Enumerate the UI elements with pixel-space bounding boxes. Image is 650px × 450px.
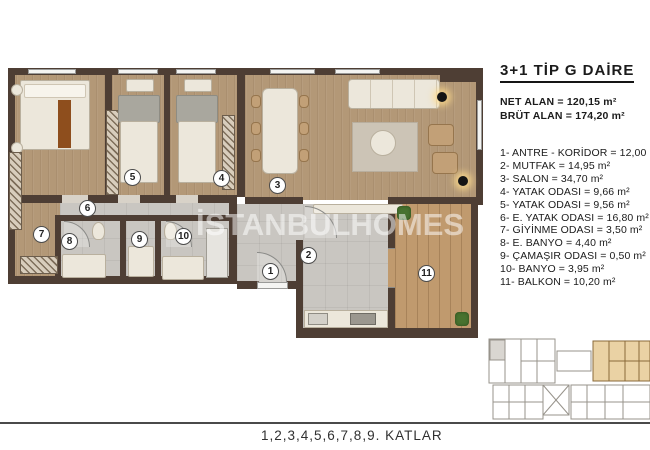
wall-bedroom4-salon (237, 68, 245, 197)
washing-machine (128, 246, 154, 277)
room-number-6: 6 (79, 200, 96, 217)
room-number-5: 5 (124, 169, 141, 186)
wall-balcony-right (471, 197, 478, 337)
window-master (28, 69, 76, 74)
nightstand-bedroom5 (126, 79, 154, 92)
bed5-headboard (118, 95, 160, 123)
room-list-item: 6- E. YATAK ODASI = 16,80 m² (500, 212, 650, 225)
wall-top (8, 68, 483, 75)
door-gap-bedroom5 (118, 195, 140, 203)
wall-bath8-laundry9 (120, 215, 126, 276)
wardrobe-master-mid (106, 110, 119, 195)
sofa (348, 79, 440, 109)
legend-panel: 3+1 TİP G DAİRE NET ALAN = 120,15 m² BRÜ… (500, 62, 650, 289)
room-list-item: 5- YATAK ODASI = 9,56 m² (500, 199, 650, 212)
door-gap-bedroom4 (176, 195, 198, 203)
apartment-type-title: 3+1 TİP G DAİRE (500, 62, 634, 83)
dining-table (262, 88, 298, 174)
nightstand-bedroom4 (184, 79, 212, 92)
room-list-item: 1- ANTRE - KORİDOR = 12,00 m² (500, 147, 650, 160)
dining-chair (299, 122, 309, 135)
dining-chair (251, 122, 261, 135)
balcony-door-gap (388, 248, 395, 288)
room-number-1: 1 (262, 263, 279, 280)
room-number-11: 11 (418, 265, 435, 282)
dining-chair (299, 95, 309, 108)
floor-lamp (437, 92, 447, 102)
room-list-item: 11- BALKON = 10,20 m² (500, 276, 650, 289)
room-list-item: 8- E. BANYO = 4,40 m² (500, 237, 650, 250)
window-salon-b (335, 69, 380, 74)
wall-bottom (296, 328, 478, 338)
plant (455, 312, 469, 326)
wall-balcony-top (395, 197, 478, 204)
armchair (432, 152, 458, 174)
room-list-item: 10- BANYO = 3,95 m² (500, 263, 650, 276)
stove (308, 313, 328, 325)
room-number-10: 10 (175, 228, 192, 245)
nightstand-master-a (11, 84, 23, 96)
room-number-9: 9 (131, 231, 148, 248)
net-area: NET ALAN = 120,15 m² (500, 95, 650, 109)
wall-laundry9-bath10 (155, 215, 161, 276)
kitchen-sink (350, 313, 376, 325)
room-list-item: 9- ÇAMAŞIR ODASI = 0,50 m² (500, 250, 650, 263)
room-list-item: 3- SALON = 34,70 m² (500, 173, 650, 186)
armchair (428, 124, 454, 146)
room-number-3: 3 (269, 177, 286, 194)
room-number-4: 4 (213, 170, 230, 187)
dining-chair (299, 149, 309, 162)
room-number-8: 8 (61, 233, 78, 250)
room-list: 1- ANTRE - KORİDOR = 12,00 m² 2- MUTFAK … (500, 147, 650, 289)
master-bed-runner (58, 100, 71, 148)
dining-chair (251, 95, 261, 108)
key-plan-map (487, 333, 650, 421)
window-salon-a (270, 69, 315, 74)
floors-caption: 1,2,3,4,5,6,7,8,9. KATLAR (261, 428, 443, 443)
window-bedroom5 (118, 69, 158, 74)
room-number-7: 7 (33, 226, 50, 243)
master-bed-pillows (24, 84, 86, 98)
room-list-item: 2- MUTFAK = 14,95 m² (500, 160, 650, 173)
entry-door-threshold (257, 282, 288, 289)
wall-salon-kitchen (245, 197, 303, 204)
watermark: İSTANBULHOMES (196, 207, 464, 243)
bath8-sink-counter (62, 254, 106, 278)
window-salon-right (477, 100, 482, 150)
room-list-item: 4- YATAK ODASI = 9,66 m² (500, 186, 650, 199)
window-bedroom4 (176, 69, 216, 74)
wall-bedroom5-bedroom4 (164, 68, 170, 197)
bed4 (178, 121, 216, 183)
room-list-item: 7- GİYİNME ODASI = 3,50 m² (500, 224, 650, 237)
room-number-2: 2 (300, 247, 317, 264)
wardrobe-master-left (9, 152, 22, 230)
bed4-headboard (176, 95, 218, 123)
bath8-toilet (92, 222, 105, 240)
divider-line (0, 422, 650, 424)
wall-antre-bottom-b (287, 281, 303, 289)
dining-chair (251, 149, 261, 162)
wardrobe-dressing (20, 256, 58, 274)
floor-lamp (458, 176, 468, 186)
brut-area: BRÜT ALAN = 174,20 m² (500, 109, 650, 123)
coffee-table (370, 130, 396, 156)
wall-antre-bottom-a (237, 281, 259, 289)
bath10-sink-counter (162, 256, 204, 280)
